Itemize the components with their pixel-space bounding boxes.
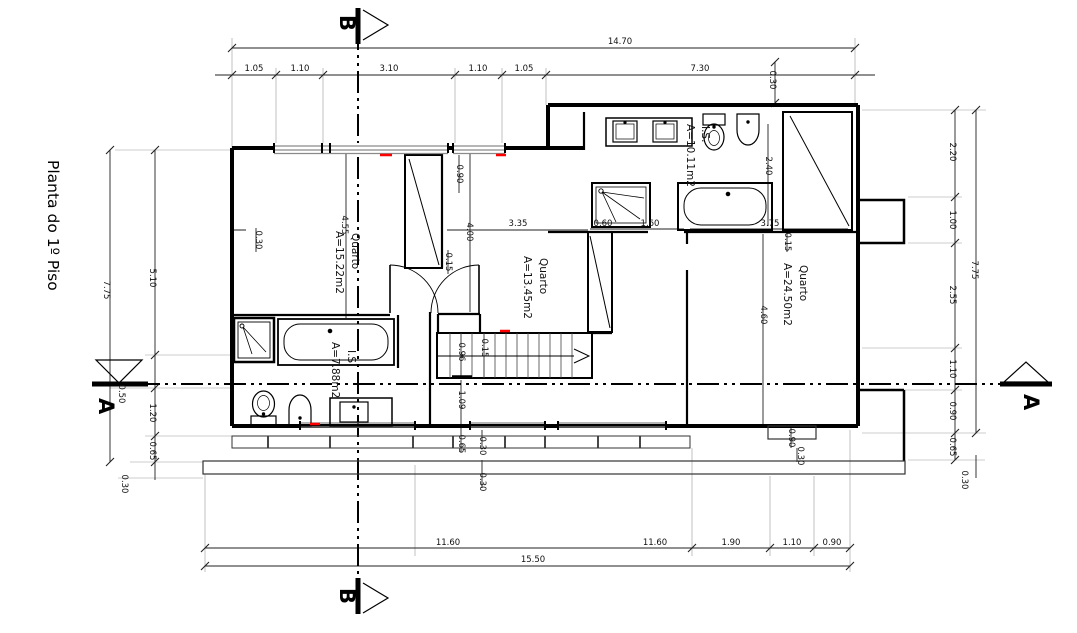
dim-label: 0.30 — [767, 71, 777, 90]
room-label: I.S. — [699, 126, 711, 142]
dim-label: 15.50 — [521, 555, 545, 565]
dim-label: 0.30 — [253, 231, 263, 250]
room-label: Quarto — [797, 265, 809, 301]
room-area: A=10.11m2 — [684, 124, 696, 187]
dim-label: 0.30 — [959, 471, 969, 490]
washbasin — [330, 398, 392, 426]
dim-label: 4.00 — [464, 223, 474, 242]
dim-label: 0.15 — [479, 339, 489, 358]
stair-direction-arrow — [574, 349, 589, 363]
room-area: A=15.22m2 — [333, 231, 345, 294]
room-area: A=13.45m2 — [521, 256, 533, 319]
section-letter-a-right: A — [1019, 394, 1043, 411]
bathroom-upper-fixtures — [592, 114, 772, 230]
dim-label: 3.10 — [380, 64, 399, 74]
section-arrow-a-right — [1004, 362, 1048, 382]
dim-label: 11.60 — [643, 538, 667, 548]
dim-label: 0.96 — [456, 343, 466, 362]
section-arrow-b-top — [363, 10, 388, 40]
dim-label: 3.35 — [509, 219, 528, 229]
dim-label: 1.20 — [147, 404, 157, 423]
dim-label: 1.10 — [947, 360, 957, 379]
dim-label: 7.75 — [969, 261, 979, 280]
dim-label: 2.20 — [947, 143, 957, 162]
bathtub — [678, 183, 772, 230]
dim-label: 0.90 — [947, 402, 957, 421]
dim-label: 0.90 — [786, 429, 796, 448]
dim-label: 0.30 — [795, 447, 805, 466]
section-letter-b-bottom: B — [335, 588, 359, 604]
section-lines — [92, 8, 1052, 614]
dim-label: 1.05 — [515, 64, 534, 74]
dim-label: 0.65 — [147, 442, 157, 461]
dim-label: 0.15 — [443, 253, 453, 272]
dim-label: 0.65 — [947, 438, 957, 457]
dimension-lines — [106, 44, 980, 570]
dim-label: 0.30 — [119, 475, 129, 494]
dim-label: 1.10 — [783, 538, 802, 548]
room-label: Quarto — [349, 233, 361, 269]
dim-label: 0.65 — [456, 435, 466, 454]
dim-label: 7.30 — [691, 64, 710, 74]
door-swing-arc — [390, 265, 479, 313]
room-area: A=7.88m2 — [329, 342, 341, 398]
dim-label: 2.55 — [947, 286, 957, 305]
dim-label: 5.10 — [147, 269, 157, 288]
door-leaf — [390, 265, 479, 313]
sheet-title: Planta do 1º Piso — [44, 160, 62, 291]
dim-label: 0.15 — [782, 233, 792, 252]
dim-label: 0.90 — [454, 165, 464, 184]
dim-label: 1.90 — [722, 538, 741, 548]
dim-label: 11.60 — [436, 538, 460, 548]
dim-label: 0.30 — [477, 437, 487, 456]
dim-label: 4.55 — [339, 216, 349, 235]
room-label: I.S. — [345, 350, 357, 366]
room-label: Quarto — [537, 258, 549, 294]
labels: Planta do 1º Piso B B A A Quarto A=15.22… — [44, 15, 1043, 604]
floor-plan-sheet: Planta do 1º Piso B B A A Quarto A=15.22… — [0, 0, 1077, 633]
dim-label: 0.60 — [594, 219, 613, 229]
dim-label: 7.75 — [101, 281, 111, 300]
dim-label: 1.10 — [291, 64, 310, 74]
dim-label: 4.60 — [758, 306, 768, 325]
dim-label: 3.75 — [761, 219, 780, 229]
dim-label: 0.90 — [823, 538, 842, 548]
dim-label: 0.30 — [477, 473, 487, 492]
dim-label: 1.09 — [456, 391, 466, 410]
shower — [234, 318, 274, 362]
bidet — [737, 114, 759, 145]
dim-label: 1.10 — [469, 64, 488, 74]
dim-label: 1.60 — [641, 219, 660, 229]
doors — [390, 265, 479, 313]
floor-plan: Planta do 1º Piso B B A A Quarto A=15.22… — [0, 0, 1077, 633]
section-arrow-b-bottom — [363, 583, 388, 613]
dim-label: 2.40 — [763, 157, 773, 176]
dim-label: 14.70 — [608, 37, 632, 47]
dim-label: 0.50 — [116, 385, 126, 404]
section-letter-b-top: B — [335, 15, 359, 31]
bathroom-left-fixtures — [234, 318, 394, 426]
room-area: A=24.50m2 — [781, 263, 793, 326]
section-arrow-a-left — [96, 360, 142, 383]
section-letter-a-left: A — [94, 398, 118, 415]
dim-label: 1.00 — [947, 211, 957, 230]
toilet — [251, 391, 276, 426]
dim-label: 1.05 — [245, 64, 264, 74]
